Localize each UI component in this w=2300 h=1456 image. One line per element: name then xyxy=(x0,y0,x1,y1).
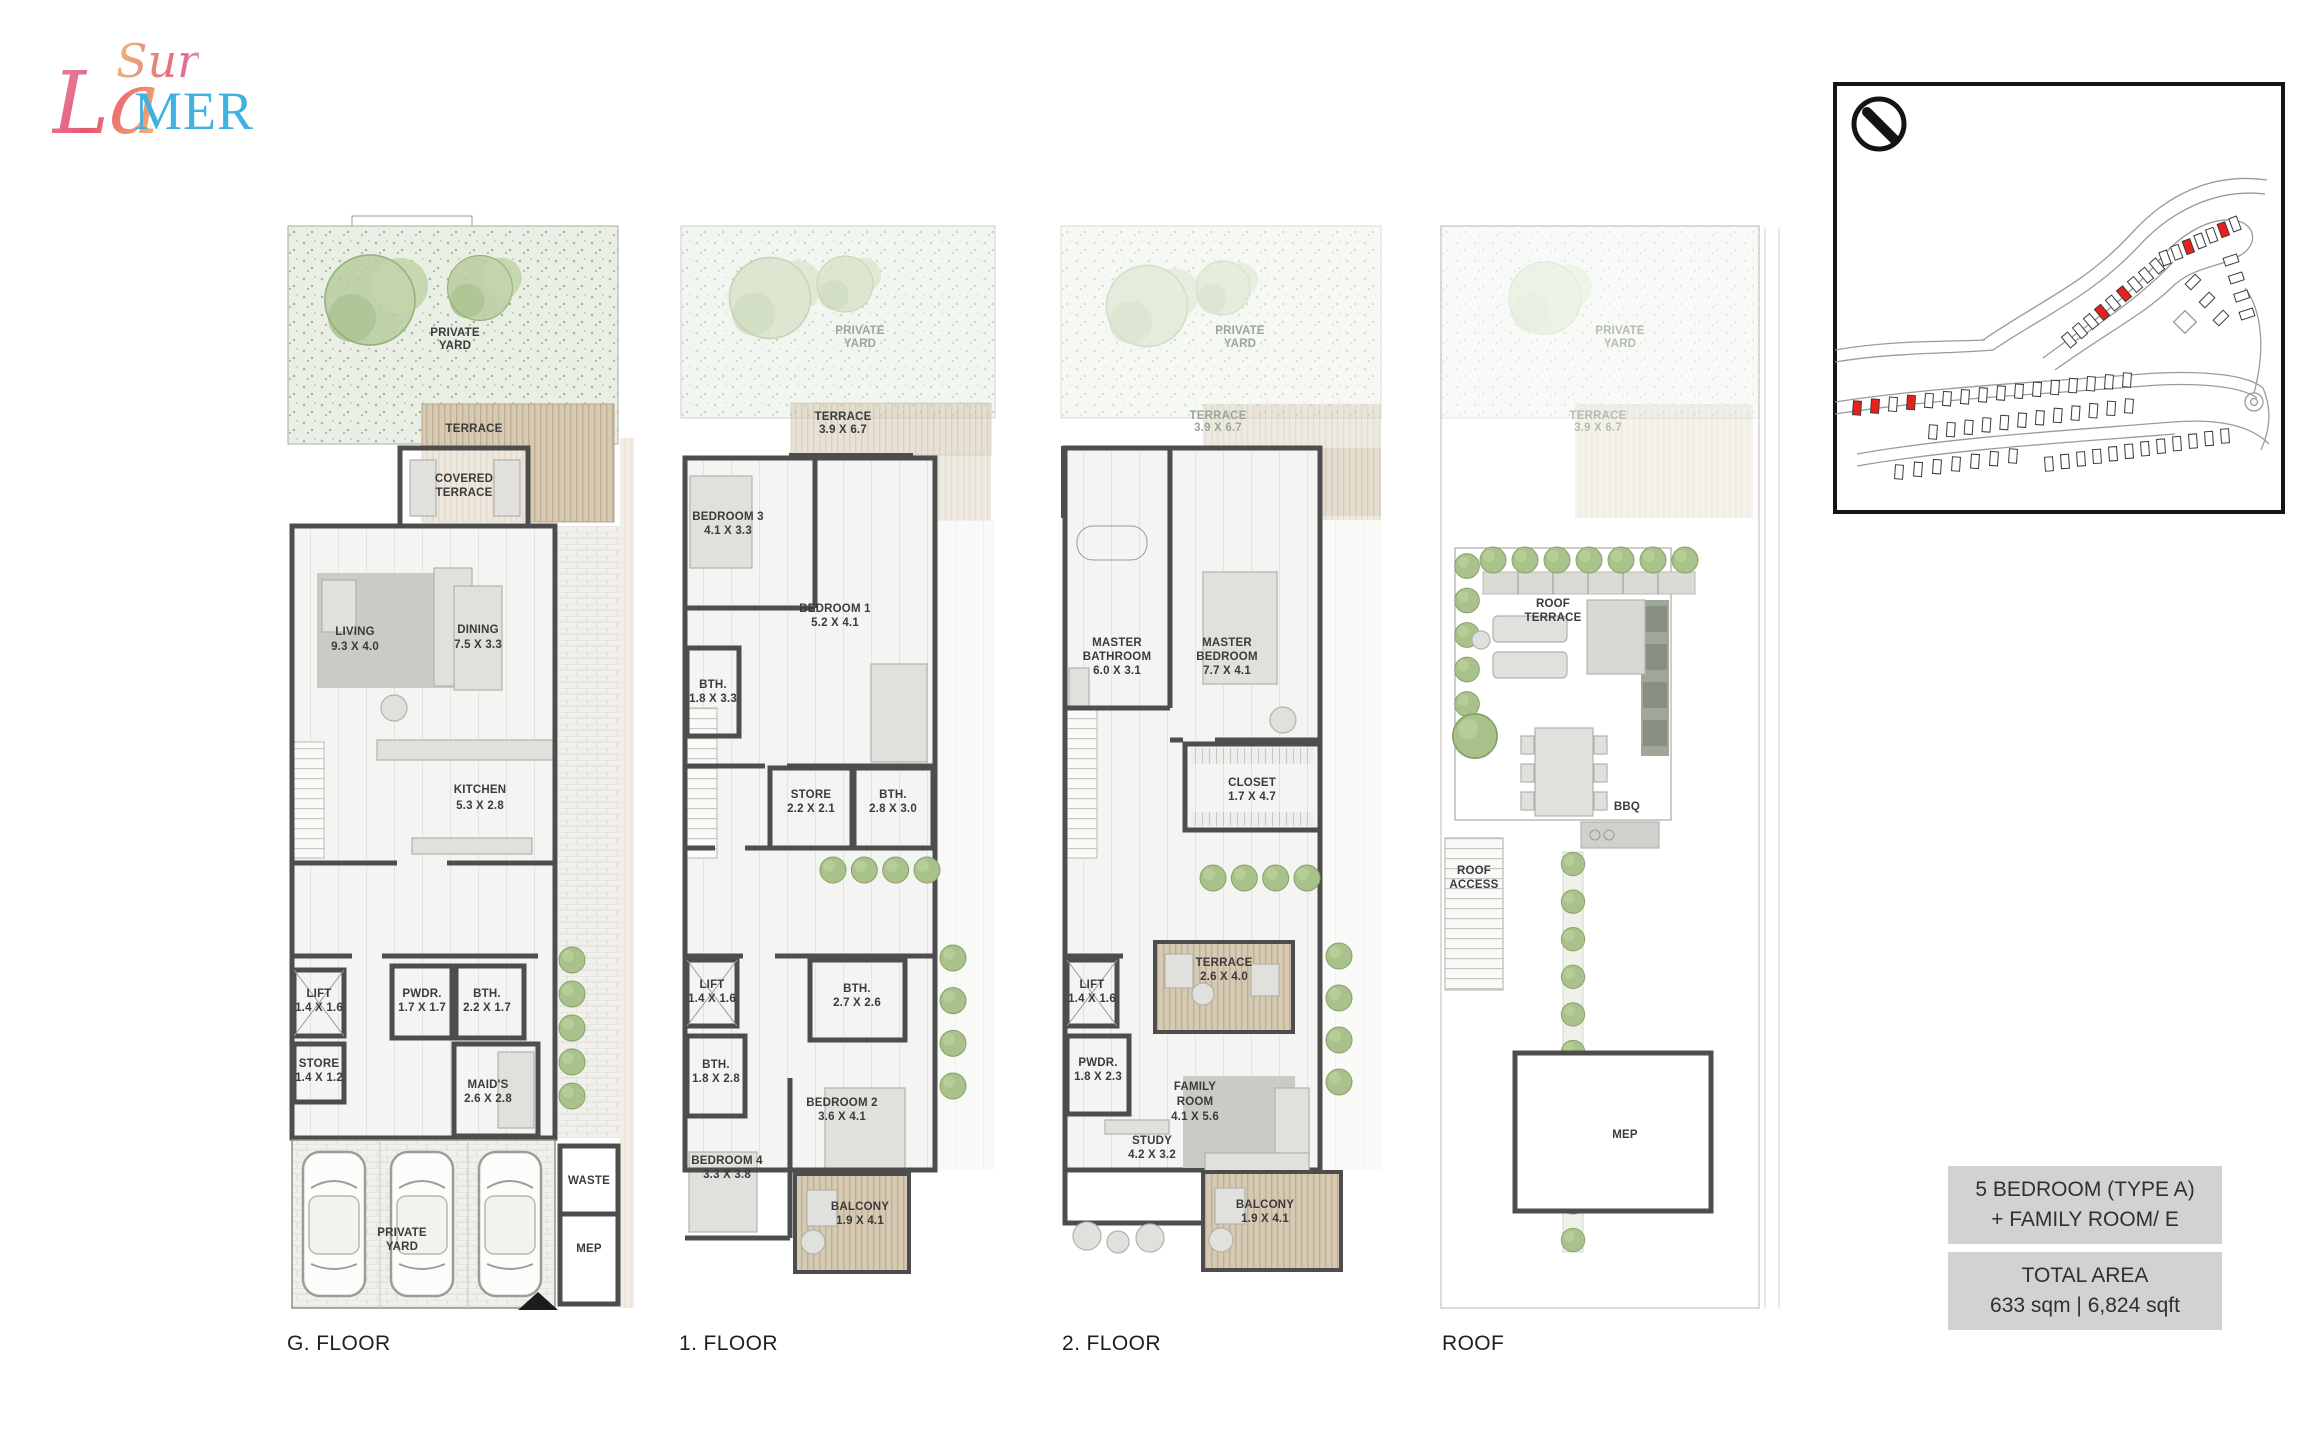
room-label-waste: WASTE xyxy=(568,1175,610,1187)
room-dims: 5.3 X 2.8 xyxy=(456,800,504,812)
room-dims: 1.4 X 1.2 xyxy=(295,1072,343,1084)
room-label-bth: BTH. xyxy=(879,789,907,801)
room-label-lift: LIFT xyxy=(1079,979,1104,991)
room-label: PRIVATE xyxy=(377,1227,427,1239)
room-dims: 7.5 X 3.3 xyxy=(454,639,502,651)
total-area-box: TOTAL AREA 633 sqm | 6,824 sqft xyxy=(1948,1252,2222,1330)
room-dims: 1.4 X 1.6 xyxy=(295,1002,343,1014)
covered-terrace: COVERED TERRACE xyxy=(400,448,528,526)
map-unit xyxy=(2053,408,2062,423)
room-label-maids: MAID'S xyxy=(468,1079,509,1091)
room-label-roof-terrace: ROOF xyxy=(1536,598,1570,610)
kitchen-counter xyxy=(377,740,555,760)
room-dims: 3.6 X 4.1 xyxy=(818,1111,866,1123)
room-dims: 1.4 X 1.6 xyxy=(688,993,736,1005)
room-label: YARD xyxy=(844,338,876,350)
room-dims: 1.7 X 1.7 xyxy=(398,1002,446,1014)
map-unit xyxy=(1964,420,1973,435)
building: BEDROOM 3 4.1 X 3.3 BEDROOM 1 5.2 X 4.1 … xyxy=(683,458,995,1238)
private-yard-faded xyxy=(681,226,995,418)
map-unit xyxy=(2173,436,2182,451)
dining-table xyxy=(1535,728,1593,816)
balcony-bottom: BALCONY 1.9 X 4.1 xyxy=(795,1174,909,1272)
map-unit xyxy=(2157,439,2166,454)
room-dims: 4.1 X 3.3 xyxy=(704,525,752,537)
room-label-mep: MEP xyxy=(576,1243,602,1255)
room-dims: 1.8 X 2.3 xyxy=(1074,1071,1122,1083)
stairs xyxy=(1445,838,1503,990)
roof-access: ROOF ACCESS xyxy=(1445,838,1503,990)
map-unit xyxy=(2009,449,2018,464)
room-label-pwdr: PWDR. xyxy=(1078,1057,1117,1069)
room-label-mep: MEP xyxy=(1612,1129,1638,1141)
room-dims: 3.3 X 3.8 xyxy=(703,1169,751,1181)
room-label-study: STUDY xyxy=(1132,1135,1172,1147)
unit-type-line2: + FAMILY ROOM/ E xyxy=(1991,1205,2179,1235)
room-label-lift: LIFT xyxy=(699,979,724,991)
room-label-store: STORE xyxy=(791,789,832,801)
logo-mer: MER xyxy=(134,80,254,142)
floor-label-roof: ROOF xyxy=(1442,1332,1504,1356)
room-dims: 9.3 X 4.0 xyxy=(331,641,379,653)
map-unit xyxy=(1929,425,1938,440)
room-dims: 2.7 X 2.6 xyxy=(833,997,881,1009)
car-icon xyxy=(479,1152,541,1296)
room-dims: 4.2 X 3.2 xyxy=(1128,1149,1176,1161)
unit-type-box: 5 BEDROOM (TYPE A) + FAMILY ROOM/ E xyxy=(1948,1166,2222,1244)
room-label-closet: CLOSET xyxy=(1228,777,1276,789)
room-label: TERRACE xyxy=(436,487,493,499)
map-unit xyxy=(1971,454,1980,469)
room-dims: 7.7 X 4.1 xyxy=(1203,665,1251,677)
map-unit xyxy=(2033,382,2042,397)
room-dims: 3.9 X 6.7 xyxy=(1194,422,1242,434)
room-label-dining: DINING xyxy=(457,624,498,636)
site-location-map xyxy=(1833,82,2285,514)
room-label-bedroom1: BEDROOM 1 xyxy=(799,603,871,615)
room-label: YARD xyxy=(386,1241,418,1253)
room-label: TERRACE xyxy=(1525,612,1582,624)
room-dims: 2.6 X 4.0 xyxy=(1200,971,1248,983)
map-unit xyxy=(2125,444,2134,459)
map-unit xyxy=(2189,434,2198,449)
room-label-bth: BTH. xyxy=(702,1059,730,1071)
map-unit xyxy=(1952,457,1961,472)
map-highlighted-unit xyxy=(1907,395,1916,410)
room-label-living: LIVING xyxy=(335,626,375,638)
utility-rooms: WASTE MEP xyxy=(560,1146,618,1304)
map-unit xyxy=(2018,413,2027,428)
room-dims: 5.2 X 4.1 xyxy=(811,617,859,629)
map-unit xyxy=(2107,401,2116,416)
map-unit xyxy=(2109,447,2118,462)
room-label: ROOM xyxy=(1177,1096,1214,1108)
lounger xyxy=(1493,652,1567,678)
room-label-terrace: TERRACE xyxy=(815,411,872,423)
map-unit xyxy=(2077,452,2086,467)
room-label: YARD xyxy=(1604,338,1636,350)
room-label-balcony: BALCONY xyxy=(831,1201,889,1213)
map-border xyxy=(1835,84,2283,512)
map-unit xyxy=(2105,375,2114,390)
room-label: PRIVATE xyxy=(835,325,885,337)
map-highlighted-unit xyxy=(1853,401,1862,416)
bed xyxy=(871,664,927,762)
room-label-bth: BTH. xyxy=(473,988,501,1000)
map-unit xyxy=(2000,415,2009,430)
room-label-bedroom2: BEDROOM 2 xyxy=(806,1097,877,1109)
room-label-master-bedroom: MASTER xyxy=(1202,637,1252,649)
room-label-pwdr: PWDR. xyxy=(402,988,441,1000)
room-dims: 1.7 X 4.7 xyxy=(1228,791,1276,803)
map-unit xyxy=(2045,457,2054,472)
room-label-master-bathroom: MASTER xyxy=(1092,637,1142,649)
floor-label-second: 2. FLOOR xyxy=(1062,1332,1161,1356)
room-label-bth: BTH. xyxy=(699,679,727,691)
map-unit xyxy=(2141,441,2150,456)
map-unit xyxy=(2035,411,2044,426)
unit-type-line1: 5 BEDROOM (TYPE A) xyxy=(1975,1175,2194,1205)
brochure-page: { "logo": {"sur": "Sur", "la": "La", "me… xyxy=(0,0,2300,1456)
map-unit xyxy=(1990,451,1999,466)
room-label-lift: LIFT xyxy=(306,988,331,1000)
terrace-mid: TERRACE 2.6 X 4.0 xyxy=(1155,942,1293,1032)
map-unit xyxy=(2205,431,2214,446)
room-label-family-room: FAMILY xyxy=(1174,1081,1216,1093)
room-label-store: STORE xyxy=(299,1058,340,1070)
map-unit xyxy=(1925,393,1934,408)
map-unit xyxy=(2087,376,2096,391)
map-unit xyxy=(2093,449,2102,464)
map-unit xyxy=(2089,403,2098,418)
room-label-kitchen: KITCHEN xyxy=(454,784,507,796)
dining-table xyxy=(454,586,502,690)
room-label: ACCESS xyxy=(1449,879,1498,891)
room-dims: 1.8 X 2.8 xyxy=(692,1073,740,1085)
room-dims: 2.8 X 3.0 xyxy=(869,803,917,815)
room-dims: 2.2 X 1.7 xyxy=(463,1002,511,1014)
floor-plan-first: PRIVATE YARD TERRACE 3.9 X 6.7 BALCONY 2… xyxy=(675,148,1005,1328)
floor-label-ground: G. FLOOR xyxy=(287,1332,391,1356)
floor-plan-ground: PRIVATE YARD TERRACE COVERED TERRACE xyxy=(282,148,640,1328)
room-label: YARD xyxy=(1224,338,1256,350)
room-label: COVERED xyxy=(435,473,493,485)
map-unit xyxy=(1982,418,1991,433)
room-label: BEDROOM xyxy=(1196,651,1257,663)
room-dims: 1.4 X 1.6 xyxy=(1068,993,1116,1005)
map-unit xyxy=(1979,388,1988,403)
room-label-bedroom3: BEDROOM 3 xyxy=(692,511,763,523)
room-label: PRIVATE xyxy=(430,327,480,339)
map-unit xyxy=(1889,397,1898,412)
map-unit xyxy=(2125,399,2134,414)
hedge-row xyxy=(1480,547,1698,573)
map-unit xyxy=(2071,406,2080,421)
sur-la-mer-logo: La Sur MER xyxy=(52,34,312,184)
roof-terrace: ROOF TERRACE BBQ xyxy=(1453,547,1698,848)
private-yard-faded xyxy=(1441,226,1759,418)
room-dims: 1.9 X 4.1 xyxy=(836,1215,884,1227)
map-highlighted-unit xyxy=(1871,399,1880,414)
room-label-terrace: TERRACE xyxy=(1190,410,1247,422)
total-area-label: TOTAL AREA xyxy=(2022,1261,2149,1291)
stairs xyxy=(290,742,324,858)
map-unit xyxy=(2051,380,2060,395)
building: MASTER BATHROOM 6.0 X 3.1 MASTER BEDROOM… xyxy=(1063,448,1381,1253)
map-unit xyxy=(1895,465,1904,480)
mep-room: MEP xyxy=(1515,1053,1711,1211)
map-unit xyxy=(2123,373,2132,388)
map-unit xyxy=(2061,454,2070,469)
garage-yard: PRIVATE YARD xyxy=(292,1140,555,1308)
room-label-terrace: TERRACE xyxy=(1570,410,1627,422)
room-dims: 2.6 X 2.8 xyxy=(464,1093,512,1105)
car-icon xyxy=(391,1152,453,1296)
floor-label-first: 1. FLOOR xyxy=(679,1332,778,1356)
map-unit xyxy=(1914,462,1923,477)
map-unit xyxy=(2015,384,2024,399)
floor-plan-second: PRIVATE YARD TERRACE 3.9 X 6.7 BALCONY 2… xyxy=(1055,148,1400,1328)
private-yard-faded xyxy=(1061,226,1381,418)
room-dims: 1.8 X 3.3 xyxy=(689,693,737,705)
map-unit xyxy=(1933,459,1942,474)
room-label-terrace: TERRACE xyxy=(1196,957,1253,969)
room-label: BATHROOM xyxy=(1083,651,1151,663)
map-unit xyxy=(2069,378,2078,393)
room-dims: 4.1 X 5.6 xyxy=(1171,1111,1219,1123)
room-label-bbq: BBQ xyxy=(1614,801,1640,813)
room-dims: 6.0 X 3.1 xyxy=(1093,665,1141,677)
map-unit xyxy=(1946,422,1955,437)
bush-icon xyxy=(1453,714,1497,758)
stairs xyxy=(1063,708,1097,858)
map-unit xyxy=(2221,429,2230,444)
balcony-bottom: BALCONY 1.9 X 4.1 xyxy=(1203,1172,1341,1270)
desk xyxy=(1105,1120,1169,1134)
room-label-balcony: BALCONY xyxy=(1236,1199,1294,1211)
bbq-counter xyxy=(1581,822,1659,848)
room-label: PRIVATE xyxy=(1595,325,1645,337)
map-unit xyxy=(1943,391,1952,406)
room-dims: 3.9 X 6.7 xyxy=(1574,422,1622,434)
room-dims: 1.9 X 4.1 xyxy=(1241,1213,1289,1225)
total-area-value: 633 sqm | 6,824 sqft xyxy=(1990,1291,2180,1321)
room-label-bedroom4: BEDROOM 4 xyxy=(691,1155,763,1167)
room-label-bth: BTH. xyxy=(843,983,871,995)
floor-plan-roof: PRIVATE YARD TERRACE 3.9 X 6.7 ROOF TERR… xyxy=(1435,148,1795,1328)
room-dims: 2.2 X 2.1 xyxy=(787,803,835,815)
map-unit xyxy=(1997,386,2006,401)
car-icon xyxy=(303,1152,365,1296)
room-dims: 3.9 X 6.7 xyxy=(819,424,867,436)
room-label: TERRACE xyxy=(446,423,503,435)
room-label: YARD xyxy=(439,340,471,352)
map-unit xyxy=(1961,390,1970,405)
room-label-roof-access: ROOF xyxy=(1457,865,1491,877)
room-label: PRIVATE xyxy=(1215,325,1265,337)
